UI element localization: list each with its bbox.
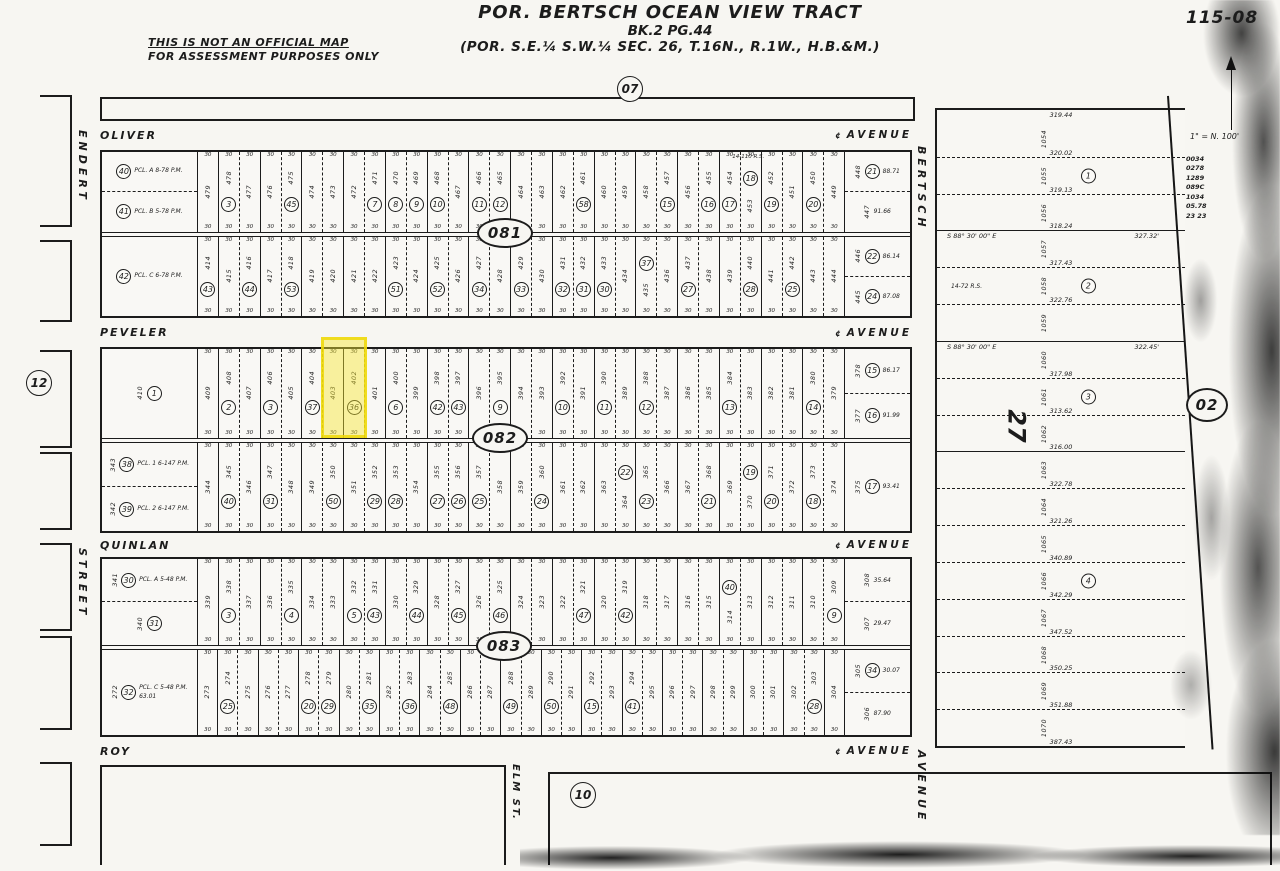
lot-cell: 303743530 [636, 237, 657, 317]
lot-number: 279 [326, 671, 333, 685]
frontage-dim: 30 [392, 225, 399, 231]
frontage-dim: 30 [831, 638, 838, 644]
circled-lot-index: 26 [451, 494, 466, 509]
circled-lot-index: 15 [584, 699, 599, 714]
frontage-dim: 30 [559, 238, 566, 244]
frontage-dim: 30 [747, 638, 754, 644]
frontage-dim: 30 [685, 524, 692, 530]
circled-parcel-index: 42 [116, 269, 131, 284]
lot-number: 442 [789, 256, 796, 270]
lot-number: 425 [434, 256, 441, 270]
frontage-dim: 30 [669, 728, 676, 734]
lot-number: 319 [622, 580, 629, 594]
lot-cell: 3046230 [553, 152, 574, 232]
lot-number: 1066 [1041, 572, 1048, 590]
frontage-dim: 30 [406, 728, 413, 734]
frontage-dim: 30 [476, 560, 483, 566]
frontage-dim: 30 [669, 651, 676, 657]
frontage-dim: 30 [305, 651, 312, 657]
street-label-elm: ELM ST. [510, 764, 521, 844]
lot-number: 426 [455, 269, 462, 283]
lot-number: 389 [622, 386, 629, 400]
lot-number: 414 [205, 256, 212, 270]
lot-number: 395 [497, 371, 504, 385]
east-lot-row: 1063322.78 [937, 452, 1185, 489]
frontage-dim: 30 [559, 638, 566, 644]
lot-cell: 3028630 [461, 650, 481, 736]
lot-number: 1063 [1041, 461, 1048, 479]
frontage-dim: 30 [768, 225, 775, 231]
lot-number: 422 [372, 269, 379, 283]
frontage-dim: 30 [580, 638, 587, 644]
lot-number: 315 [706, 595, 713, 609]
lot-cell: 30400630 [386, 349, 407, 438]
circled-parcel-index: 30 [121, 573, 136, 588]
circled-lot-index: 5 [347, 608, 362, 623]
lot-number: 356 [455, 465, 462, 479]
frontage-dim: 30 [538, 431, 545, 437]
lot-number: 431 [560, 256, 567, 270]
frontage-dim: 30 [789, 225, 796, 231]
lot-number: 479 [205, 185, 212, 199]
lot-cell: 304333030 [595, 237, 616, 317]
lot-number: 379 [831, 386, 838, 400]
circled-lot-index: 16 [701, 197, 716, 212]
frontage-dim: 30 [447, 728, 454, 734]
frontage-dim: 30 [831, 238, 838, 244]
lot-cell: 3033030 [386, 559, 407, 645]
lot-number: 316 [685, 595, 692, 609]
lot-cell: 3047330 [323, 152, 344, 232]
frontage-dim: 30 [559, 524, 566, 530]
circled-lot-index: 40 [722, 580, 737, 595]
corner-parcels: 30835.6430729.47 [844, 559, 910, 645]
circled-lot-index: 9 [493, 400, 508, 415]
corner-parcel: 27232PCL. C 5-48 P.M.63.01 [102, 650, 197, 736]
corner-parcel: 30729.47 [845, 602, 910, 644]
frontage-dim: 30 [413, 444, 420, 450]
adjacent-block-12-label: 12 [26, 370, 52, 396]
lot-cell: 303731830 [803, 443, 824, 532]
lot-cell: 304754530 [282, 152, 303, 232]
frontage-dim: 30 [580, 309, 587, 315]
frontage-dim: 30 [664, 225, 671, 231]
lot-cell: 3038630 [678, 349, 699, 438]
lot-cell: 3032030 [595, 559, 616, 645]
lot-number: 286 [467, 685, 474, 699]
circled-lot-index: 22 [618, 465, 633, 480]
lot-number: 325 [497, 580, 504, 594]
circled-lot-index: 27 [681, 282, 696, 297]
frontage-dim: 30 [204, 444, 211, 450]
lot-number: 373 [810, 465, 817, 479]
corner-parcel: 34130PCL. A 5-48 P.M. [102, 559, 197, 602]
lot-number: 352 [372, 465, 379, 479]
dimension-label: 313.62 [937, 407, 1185, 415]
lot-number: 369 [727, 480, 734, 494]
frontage-dim: 30 [497, 309, 504, 315]
frontage-dim: 30 [351, 524, 358, 530]
lot-number: 360 [539, 465, 546, 479]
frontage-dim: 30 [204, 225, 211, 231]
dimension-label: 318.24 [937, 222, 1185, 230]
frontage-dim: 30 [267, 524, 274, 530]
lot-number: 322 [560, 595, 567, 609]
lot-cell: 3042430 [407, 237, 428, 317]
frontage-dim: 30 [768, 309, 775, 315]
lot-number: 321 [580, 580, 587, 594]
circled-lot-index: 28 [743, 282, 758, 297]
frontage-dim: 30 [810, 431, 817, 437]
frontage-dim: 30 [770, 728, 777, 734]
lot-cell: 302792930 [319, 650, 339, 736]
block-081-south-row: 42PCL. C 6-78 P.M.3041443303041530304164… [102, 237, 910, 317]
frontage-dim: 30 [246, 153, 253, 159]
lot-number: 330 [393, 595, 400, 609]
lot-cell: 3041930 [302, 237, 323, 317]
frontage-dim: 30 [330, 638, 337, 644]
street-roy: ROY ¢AVENUE [100, 737, 912, 765]
lot-number: 334 [309, 595, 316, 609]
frontage-dim: 30 [455, 238, 462, 244]
frontage-dim: 30 [705, 225, 712, 231]
lot-number: 435 [643, 283, 650, 297]
frontage-dim: 30 [434, 431, 441, 437]
parcel-annotations: 91.99 [883, 412, 900, 419]
frontage-dim: 30 [811, 651, 818, 657]
parcel-map-reference: PCL. C 6-78 P.M. [134, 273, 182, 280]
frontage-dim: 30 [747, 524, 754, 530]
frontage-dim: 30 [538, 524, 545, 530]
east-lot-row: 1062316.00 [937, 416, 1185, 453]
lot-cell: 3031630 [678, 559, 699, 645]
circled-lot-index: 12 [639, 400, 654, 415]
lot-cell: 302782030 [299, 650, 319, 736]
lot-number: 396 [476, 386, 483, 400]
lot-number: 1058 [1041, 277, 1048, 295]
frontage-dim: 30 [476, 309, 483, 315]
frontage-dim: 30 [580, 524, 587, 530]
east-lot-row: 10613313.62 [937, 379, 1185, 416]
dimension-label: 387.43 [937, 738, 1185, 746]
lot-number: 449 [831, 185, 838, 199]
frontage-dim: 30 [392, 524, 399, 530]
lot-cell: 3031530 [699, 559, 720, 645]
lot-number: 275 [245, 685, 252, 699]
frontage-dim: 30 [225, 350, 232, 356]
lot-cell: 3043930 [720, 237, 741, 317]
east-lot-row: 10551319.13 [937, 158, 1185, 195]
dimension-label: 91.66 [874, 208, 891, 215]
frontage-dim: 30 [330, 560, 337, 566]
frontage-dim: 30 [434, 444, 441, 450]
lot-number: 347 [267, 465, 274, 479]
frontage-dim: 30 [643, 444, 650, 450]
lot-number: 451 [789, 185, 796, 199]
circled-lot-index: 21 [701, 494, 716, 509]
circled-lot-index: 42 [430, 400, 445, 415]
lot-cell: 3045130 [783, 152, 804, 232]
lot-cell: 303454030 [219, 443, 240, 532]
frontage-dim: 30 [608, 651, 615, 657]
east-lot-row: 1058214-72 R.S.322.76 [937, 268, 1185, 305]
lot-number: 1069 [1041, 682, 1048, 700]
lot-cell: 3046030 [595, 152, 616, 232]
east-lot-row: 1054320.02 [937, 121, 1185, 158]
corner-parcel: 41PCL. B 5-78 P.M. [102, 192, 197, 231]
lot-number: 407 [246, 386, 253, 400]
lot-number: 459 [622, 185, 629, 199]
corner-parcel: 44791.66 [845, 192, 910, 231]
lot-cell: 3030130 [764, 650, 784, 736]
circled-lot-index: 3 [221, 197, 236, 212]
frontage-dim: 30 [747, 238, 754, 244]
lot-cell: 303314330 [365, 559, 386, 645]
circled-lot-index: 10 [555, 400, 570, 415]
lot-cell: 302742530 [218, 650, 238, 736]
lot-cell: 3038530 [699, 349, 720, 438]
frontage-dim: 30 [330, 444, 337, 450]
lot-cell: 3046330 [532, 152, 553, 232]
frontage-dim: 30 [265, 728, 272, 734]
lot-number: 464 [518, 185, 525, 199]
circled-parcel-index: 32 [121, 685, 136, 700]
frontage-dim: 30 [288, 638, 295, 644]
lot-cell: 3036230 [574, 443, 595, 532]
frontage-dim: 30 [747, 431, 754, 437]
frontage-dim: 30 [476, 153, 483, 159]
lot-cell: 3036130 [553, 443, 574, 532]
east-lot-row: 1056318.24 [937, 195, 1185, 232]
circled-lot-index: 36 [402, 699, 417, 714]
lot-number: 399 [413, 386, 420, 400]
lot-cell: 304185330 [282, 237, 303, 317]
lot-cell: 30469930 [407, 152, 428, 232]
lot-number: 339 [205, 595, 212, 609]
lot-cell: 3040930 [198, 349, 219, 438]
margin-code: 23 23 [1186, 212, 1207, 221]
frontage-dim: 30 [810, 225, 817, 231]
frontage-dim: 30 [789, 444, 796, 450]
lot-cell: 303505030 [323, 443, 344, 532]
lot-cell: 3035130 [344, 443, 365, 532]
lot-cell: 30406330 [261, 349, 282, 438]
circled-parcel-index: 34 [865, 663, 880, 678]
frontage-dim: 30 [831, 728, 838, 734]
frontage-dim: 30 [413, 309, 420, 315]
lot-number: 361 [560, 480, 567, 494]
lot-number: 365 [643, 465, 650, 479]
lot-cell: 3034830 [282, 443, 303, 532]
lot-cell: 3029830 [703, 650, 723, 736]
lot-cell: 304235130 [386, 237, 407, 317]
frontage-dim: 30 [580, 560, 587, 566]
frontage-dim: 30 [831, 444, 838, 450]
lot-cell: 304681030 [428, 152, 449, 232]
frontage-dim: 30 [789, 350, 796, 356]
circled-parcel-index: 31 [147, 616, 162, 631]
frontage-dim: 30 [392, 309, 399, 315]
east-section: 319.441054320.0210551319.131056318.24S 8… [935, 108, 1185, 748]
lot-number: 424 [413, 269, 420, 283]
frontage-dim: 30 [371, 309, 378, 315]
lot-number: 326 [476, 595, 483, 609]
frontage-dim: 30 [810, 350, 817, 356]
dimension-label: 30.07 [883, 667, 900, 674]
frontage-dim: 30 [643, 560, 650, 566]
dimension-label: 91.99 [883, 412, 900, 419]
frontage-dim: 30 [309, 153, 316, 159]
frontage-dim: 30 [351, 444, 358, 450]
margin-code: 089C [1186, 183, 1207, 192]
circled-lot-index: 33 [514, 282, 529, 297]
lot-number: 440 [747, 256, 754, 270]
bearing-distance: 327.32' [1134, 232, 1159, 240]
lot-cell: 3038730 [657, 349, 678, 438]
lot-cell: 3043630 [657, 237, 678, 317]
lot-number: 462 [560, 185, 567, 199]
frontage-dim: 30 [649, 651, 656, 657]
parcel-annotations: 35.64 [874, 577, 891, 584]
lot-number: 368 [706, 465, 713, 479]
circled-lot-index: 18 [743, 171, 758, 186]
frontage-dim: 30 [325, 728, 332, 734]
frontage-dim: 30 [622, 560, 629, 566]
frontage-dim: 30 [710, 651, 717, 657]
circled-lot-index: 31 [576, 282, 591, 297]
lot-number: 408 [226, 371, 233, 385]
frontage-dim: 30 [518, 524, 525, 530]
east-lot-row: 10664342.29 [937, 563, 1185, 600]
margin-code: 1289 [1186, 174, 1207, 183]
lot-cell: 3047430 [302, 152, 323, 232]
frontage-dim: 30 [559, 431, 566, 437]
lot-number: 444 [831, 269, 838, 283]
block-10-outline [548, 772, 1272, 865]
frontage-dim: 30 [366, 651, 373, 657]
circled-lot-index: 46 [493, 608, 508, 623]
frontage-dim: 30 [789, 524, 796, 530]
corner-parcel: 42PCL. C 6-78 P.M. [102, 237, 197, 317]
circled-lot-index: 44 [409, 608, 424, 623]
frontage-dim: 30 [267, 225, 274, 231]
frontage-dim: 30 [730, 728, 737, 734]
frontage-dim: 30 [265, 651, 272, 657]
lot-cell: 3027630 [259, 650, 279, 736]
disclaimer-line2: FOR ASSESSMENT PURPOSES ONLY [148, 50, 379, 64]
lot-number: 355 [434, 465, 441, 479]
frontage-dim: 30 [455, 638, 462, 644]
lot-number: 282 [386, 685, 393, 699]
lot-number: 416 [246, 256, 253, 270]
lot-number: 349 [309, 480, 316, 494]
frontage-dim: 30 [685, 225, 692, 231]
lot-number: 317 [664, 595, 671, 609]
lot-number: 328 [434, 595, 441, 609]
lot-cell: 3030030 [744, 650, 764, 736]
lot-number: 346 [246, 480, 253, 494]
lot-number: 1059 [1041, 314, 1048, 332]
lot-cell: 304255230 [428, 237, 449, 317]
frontage-dim: 30 [538, 153, 545, 159]
frontage-dim: 30 [351, 431, 358, 437]
lot-number: 331 [372, 580, 379, 594]
lot-number: 314 [727, 610, 734, 624]
frontage-dim: 30 [447, 651, 454, 657]
lot-cell: 303984230 [428, 349, 449, 438]
frontage-dim: 30 [810, 238, 817, 244]
lot-number: 428 [497, 269, 504, 283]
lot-number: 335 [288, 580, 295, 594]
lot-number: 372 [789, 480, 796, 494]
lot-number: 394 [518, 386, 525, 400]
frontage-dim: 30 [371, 560, 378, 566]
lot-number: 332 [351, 580, 358, 594]
lot-cell: 303274530 [449, 559, 470, 645]
lot-cell: 3047230 [344, 152, 365, 232]
lot-number: 285 [447, 671, 454, 685]
lot-cell: 304422530 [783, 237, 804, 317]
frontage-dim: 30 [588, 728, 595, 734]
lot-number: 298 [710, 685, 717, 699]
lot-number: 423 [393, 256, 400, 270]
frontage-dim: 30 [643, 638, 650, 644]
lot-cell: 30470830 [386, 152, 407, 232]
circled-lot-index: 9 [827, 608, 842, 623]
frontage-dim: 30 [831, 153, 838, 159]
dimension-label: 29.47 [874, 620, 891, 627]
frontage-dim: 30 [413, 560, 420, 566]
lot-cell: 3028230 [380, 650, 400, 736]
circled-lot-index: 23 [639, 494, 654, 509]
lot-number: 403 [330, 386, 337, 400]
east-lot-row: 1065340.89 [937, 526, 1185, 563]
frontage-dim: 30 [588, 651, 595, 657]
frontage-dim: 30 [309, 560, 316, 566]
dimension-label: 86.14 [883, 253, 900, 260]
frontage-dim: 30 [267, 309, 274, 315]
frontage-dim: 30 [246, 524, 253, 530]
lot-number: 460 [601, 185, 608, 199]
margin-code-column: 003402781289089C103405.7823 23 [1186, 155, 1207, 221]
dimension-label: 317.98 [937, 370, 1185, 378]
frontage-dim: 30 [371, 350, 378, 356]
street-quinlan: QUINLAN ¢AVENUE [100, 533, 912, 557]
lot-number: 337 [246, 595, 253, 609]
lot-number: 432 [580, 256, 587, 270]
lot-number: 338 [226, 580, 233, 594]
lot-number: 454 [727, 171, 734, 185]
frontage-dim: 30 [538, 238, 545, 244]
lot-number: 453 [747, 199, 754, 213]
lot-cell: 303974330 [449, 349, 470, 438]
lot-cell: 302905030 [542, 650, 562, 736]
frontage-dim: 30 [225, 238, 232, 244]
frontage-dim: 30 [434, 153, 441, 159]
frontage-dim: 30 [225, 431, 232, 437]
frontage-dim: 30 [705, 238, 712, 244]
corner-parcel: 40PCL. A 8-78 P.M. [102, 152, 197, 192]
lot-cell: 3042830 [490, 237, 511, 317]
street-peveler: PEVELER ¢AVENUE [100, 318, 912, 347]
frontage-dim: 30 [559, 153, 566, 159]
parcel-annotations: 88.71 [883, 168, 900, 175]
frontage-dim: 30 [643, 431, 650, 437]
lot-cell: 303473130 [261, 443, 282, 532]
corner-parcels: 40PCL. A 8-78 P.M.41PCL. B 5-78 P.M. [102, 152, 198, 232]
lot-cell: 304615830 [574, 152, 595, 232]
block-081-number: 081 [477, 218, 533, 248]
